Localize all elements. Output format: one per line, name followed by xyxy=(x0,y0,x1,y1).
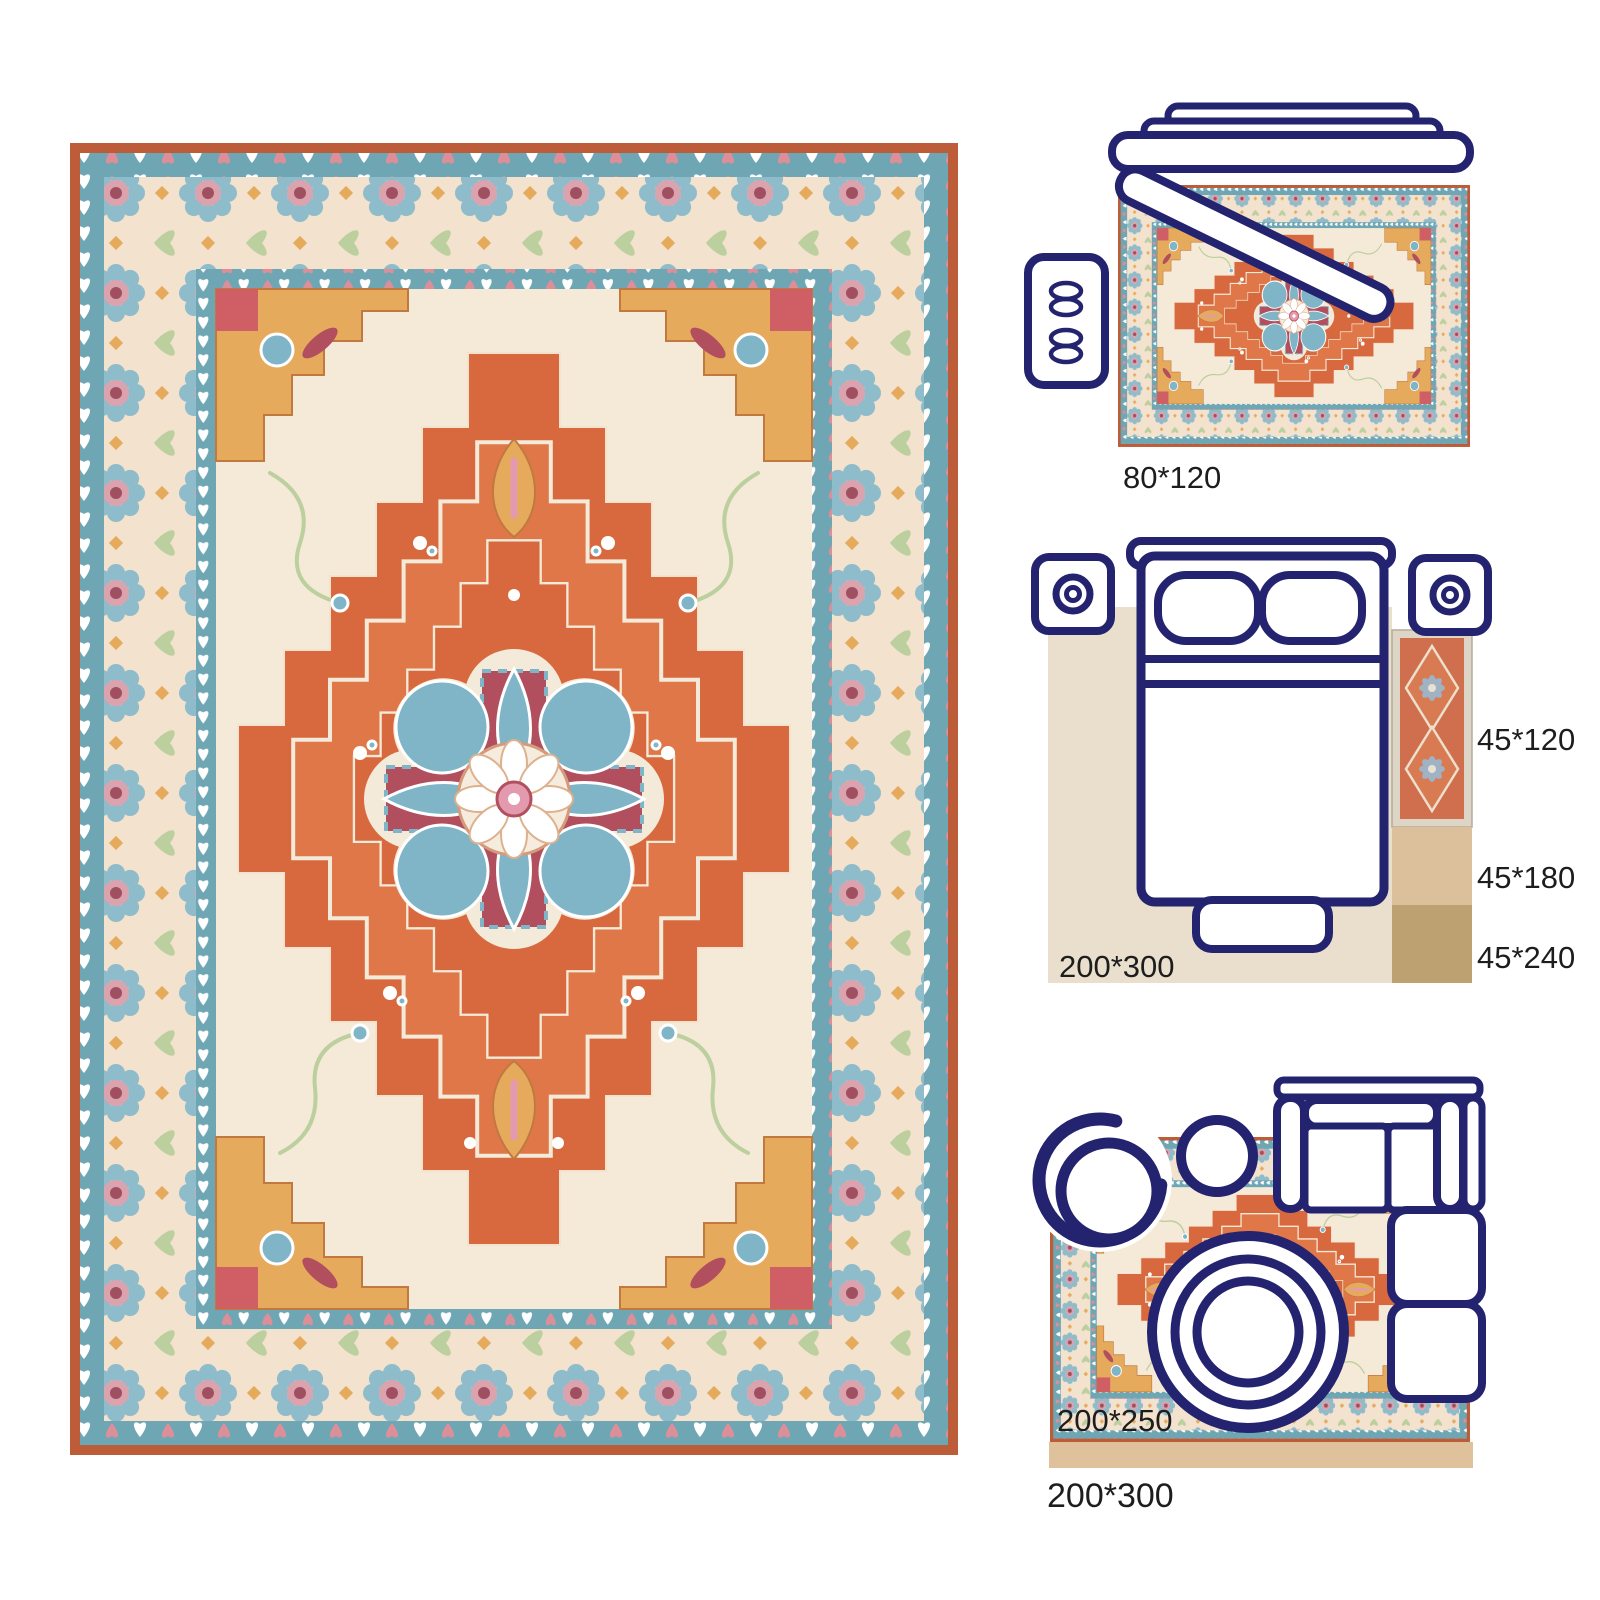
label-living-200x300: 200*300 xyxy=(1047,1477,1174,1515)
nightstand-left-icon xyxy=(1035,557,1111,631)
label-200x250: 200*250 xyxy=(1057,1403,1173,1438)
coffee-table-icon xyxy=(1152,1236,1344,1428)
size-diagram-bedroom: 200*300 45*120 45*180 45*240 xyxy=(1035,541,1575,984)
side-table-icon xyxy=(1181,1120,1253,1192)
label-45x240: 45*240 xyxy=(1477,940,1575,975)
rug-200x300-strip xyxy=(1049,1442,1473,1468)
bed-bench-icon xyxy=(1196,900,1329,949)
console-table-icon xyxy=(1112,106,1470,169)
size-diagram-living: 200*250 200*300 xyxy=(1015,1080,1482,1515)
rug-45x240 xyxy=(1392,905,1472,983)
runner-rug-45x120 xyxy=(1392,630,1472,827)
rug-45x180 xyxy=(1392,827,1472,905)
canvas: 80*120 200*300 45*120 45* xyxy=(0,0,1600,1600)
size-diagram-80x120: 80*120 xyxy=(1028,106,1470,495)
main-rug-photo xyxy=(70,143,958,1455)
nightstand-right-icon xyxy=(1412,558,1488,632)
pillow-left-icon xyxy=(1158,575,1258,641)
label-45x180: 45*180 xyxy=(1477,860,1575,895)
pillow-right-icon xyxy=(1262,575,1362,641)
label-bedroom-200x300: 200*300 xyxy=(1059,949,1175,984)
label-45x120: 45*120 xyxy=(1477,722,1575,757)
label-80x120: 80*120 xyxy=(1123,460,1221,495)
product-image: 80*120 200*300 45*120 45* xyxy=(0,0,1600,1600)
bed-icon xyxy=(1130,541,1392,949)
side-cabinet-icon xyxy=(1028,257,1105,385)
